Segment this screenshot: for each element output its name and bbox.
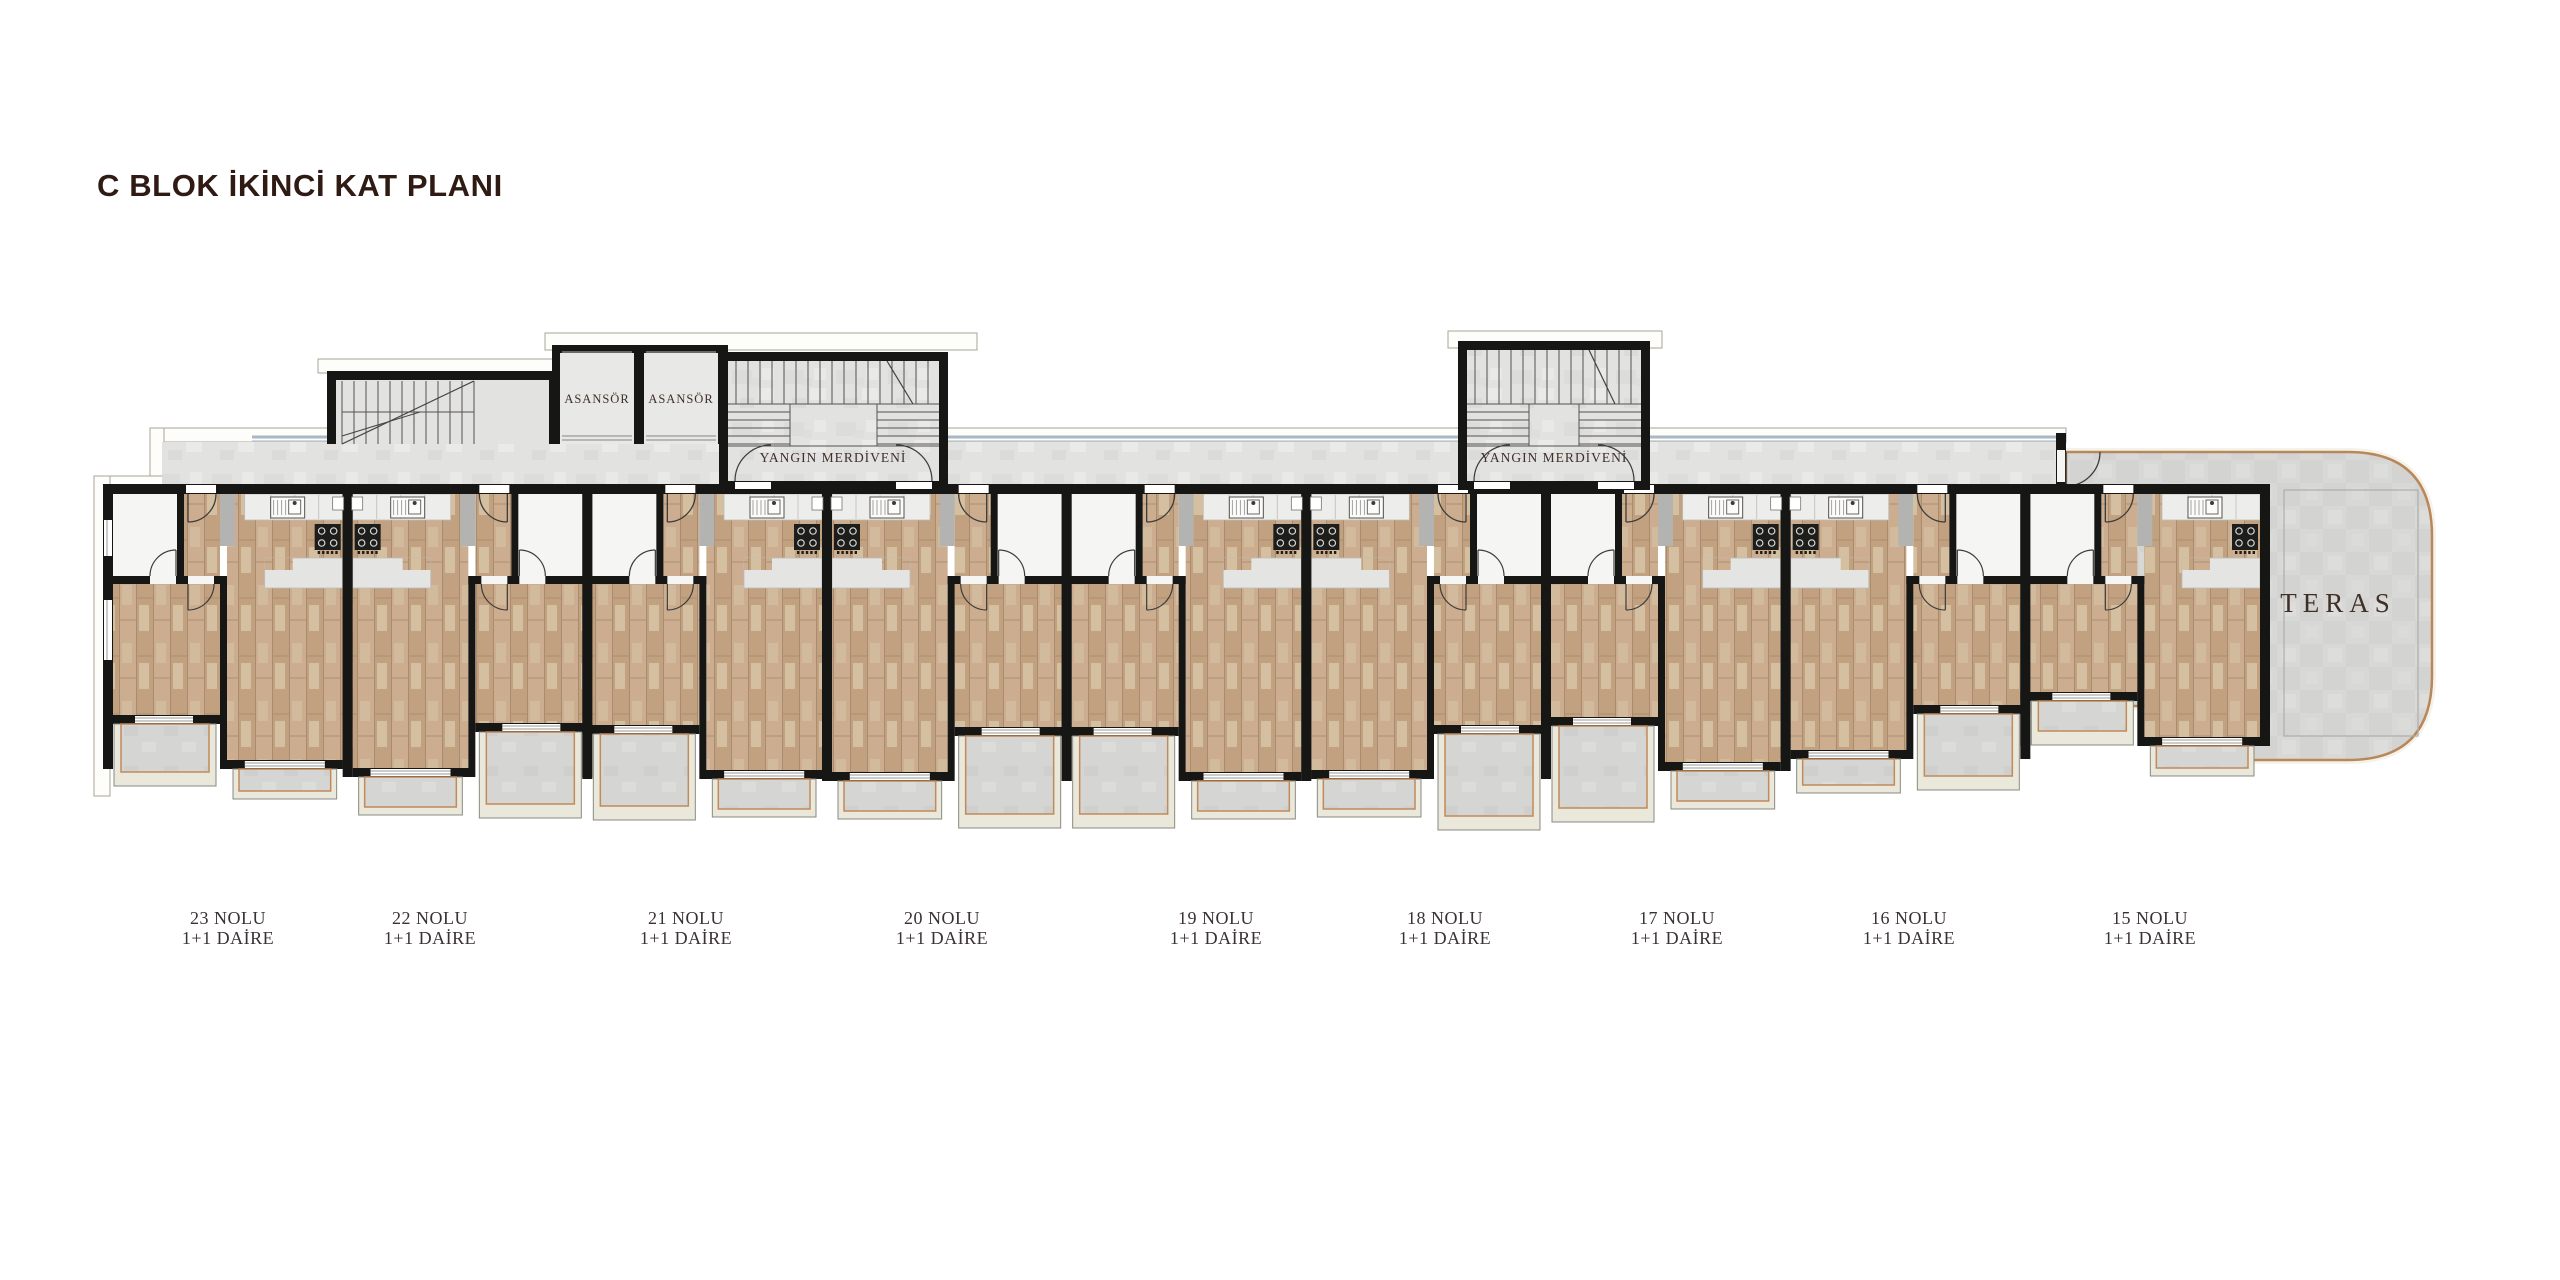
- fire-escape-1: YANGIN MERDİVENİ: [719, 352, 948, 490]
- shaft: [940, 494, 955, 546]
- living-balcony: [712, 779, 816, 817]
- fire-escape-1-label: YANGIN MERDİVENİ: [760, 450, 907, 465]
- entry-hall: [1434, 494, 1470, 576]
- svg-text:1+1 DAİRE: 1+1 DAİRE: [182, 928, 274, 948]
- shaft: [1179, 494, 1194, 546]
- bedroom-balcony: [959, 736, 1061, 828]
- svg-text:1+1 DAİRE: 1+1 DAİRE: [1863, 928, 1955, 948]
- svg-text:19 NOLU: 19 NOLU: [1178, 908, 1254, 928]
- svg-text:18 NOLU: 18 NOLU: [1407, 908, 1483, 928]
- living-balcony: [2150, 746, 2254, 776]
- stove-icon: [315, 524, 341, 554]
- apartment-19: [1062, 484, 1312, 828]
- bathroom: [518, 494, 582, 576]
- apartment-labels: 23 NOLU1+1 DAİRE22 NOLU1+1 DAİRE21 NOLU1…: [182, 908, 2196, 948]
- floor-plan-page: C BLOK İKİNCİ KAT PLANI TERASASANSÖRASAN…: [0, 0, 2560, 1280]
- bathroom: [1956, 494, 2020, 576]
- svg-text:23 NOLU: 23 NOLU: [190, 908, 266, 928]
- fire-escape-2: YANGIN MERDİVENİ: [1458, 341, 1650, 490]
- apartment-label-21: 21 NOLU1+1 DAİRE: [640, 908, 732, 948]
- sink-icon: [1229, 497, 1263, 518]
- living-balcony: [1192, 781, 1296, 819]
- elevator-block: ASANSÖRASANSÖR: [552, 345, 728, 444]
- apartment-16: [1781, 484, 2031, 793]
- svg-text:1+1 DAİRE: 1+1 DAİRE: [896, 928, 988, 948]
- bathroom: [1477, 494, 1541, 576]
- svg-text:22 NOLU: 22 NOLU: [392, 908, 468, 928]
- living-balcony: [838, 781, 942, 819]
- shaft: [1898, 494, 1913, 546]
- bedroom: [113, 584, 220, 715]
- bedroom: [955, 584, 1062, 727]
- bedroom-balcony: [2031, 701, 2133, 745]
- stove-icon: [1313, 524, 1339, 554]
- sink-icon: [1829, 497, 1863, 518]
- apartment-23: [103, 484, 353, 799]
- bedroom-balcony: [1438, 734, 1540, 830]
- apartment-20: [822, 484, 1072, 828]
- svg-text:1+1 DAİRE: 1+1 DAİRE: [384, 928, 476, 948]
- apartment-label-18: 18 NOLU1+1 DAİRE: [1399, 908, 1491, 948]
- apartment-label-16: 16 NOLU1+1 DAİRE: [1863, 908, 1955, 948]
- entry-hall: [184, 494, 220, 576]
- stove-icon: [834, 524, 860, 554]
- bedroom-balcony: [593, 734, 695, 820]
- bedroom-balcony: [114, 724, 216, 786]
- living-balcony: [359, 777, 463, 815]
- svg-text:21 NOLU: 21 NOLU: [648, 908, 724, 928]
- stove-icon: [355, 524, 381, 554]
- apartment-label-20: 20 NOLU1+1 DAİRE: [896, 908, 988, 948]
- stove-icon: [2232, 524, 2258, 554]
- bedroom-balcony: [1552, 726, 1654, 822]
- fire-escape-2-label: YANGIN MERDİVENİ: [1481, 450, 1628, 465]
- svg-text:17 NOLU: 17 NOLU: [1639, 908, 1715, 928]
- apartment-label-19: 19 NOLU1+1 DAİRE: [1170, 908, 1262, 948]
- bathroom: [1551, 494, 1615, 576]
- svg-text:1+1 DAİRE: 1+1 DAİRE: [640, 928, 732, 948]
- shaft: [1658, 494, 1673, 546]
- stove-icon: [1273, 524, 1299, 554]
- living-balcony: [1317, 779, 1421, 817]
- living-balcony: [1671, 771, 1775, 809]
- bathroom: [592, 494, 656, 576]
- shaft: [460, 494, 475, 546]
- bedroom: [1072, 584, 1179, 727]
- bathroom: [998, 494, 1062, 576]
- bathroom: [1072, 494, 1136, 576]
- stove-icon: [1793, 524, 1819, 554]
- living-balcony: [1797, 759, 1901, 793]
- elevator-label-2: ASANSÖR: [648, 392, 713, 406]
- bedroom-balcony: [479, 732, 581, 818]
- sink-icon: [870, 497, 904, 518]
- page-title: C BLOK İKİNCİ KAT PLANI: [97, 168, 503, 204]
- bedroom: [1913, 584, 2020, 705]
- apartment-label-23: 23 NOLU1+1 DAİRE: [182, 908, 274, 948]
- living-balcony: [233, 769, 337, 799]
- entry-hall: [1913, 494, 1949, 576]
- sink-icon: [2188, 497, 2222, 518]
- sink-icon: [391, 497, 425, 518]
- apartment-18: [1301, 484, 1551, 830]
- shaft: [699, 494, 714, 546]
- apartment-21: [582, 484, 832, 820]
- svg-text:16 NOLU: 16 NOLU: [1871, 908, 1947, 928]
- sink-icon: [271, 497, 305, 518]
- svg-text:1+1 DAİRE: 1+1 DAİRE: [1631, 928, 1723, 948]
- svg-text:1+1 DAİRE: 1+1 DAİRE: [1399, 928, 1491, 948]
- apartment-17: [1541, 484, 1791, 822]
- main-staircase: [327, 371, 558, 444]
- entry-hall: [1622, 494, 1658, 576]
- sink-icon: [750, 497, 784, 518]
- entry-hall: [2101, 494, 2137, 576]
- svg-text:1+1 DAİRE: 1+1 DAİRE: [2104, 928, 2196, 948]
- elevator-label-1: ASANSÖR: [564, 392, 629, 406]
- bedroom-balcony: [1073, 736, 1175, 828]
- shaft: [2137, 494, 2152, 546]
- apartment-15: [2020, 484, 2270, 776]
- terrace-label: TERAS: [2280, 588, 2396, 618]
- entry-hall: [1143, 494, 1179, 576]
- svg-text:20 NOLU: 20 NOLU: [904, 908, 980, 928]
- stove-icon: [1753, 524, 1779, 554]
- stove-icon: [794, 524, 820, 554]
- svg-text:15 NOLU: 15 NOLU: [2112, 908, 2188, 928]
- shaft: [1419, 494, 1434, 546]
- sink-icon: [1709, 497, 1743, 518]
- bedroom-balcony: [1917, 714, 2019, 790]
- bathroom: [113, 494, 177, 576]
- shaft: [220, 494, 235, 546]
- apartment-label-17: 17 NOLU1+1 DAİRE: [1631, 908, 1723, 948]
- entry-hall: [955, 494, 991, 576]
- sink-icon: [1349, 497, 1383, 518]
- svg-text:1+1 DAİRE: 1+1 DAİRE: [1170, 928, 1262, 948]
- apartment-label-22: 22 NOLU1+1 DAİRE: [384, 908, 476, 948]
- apartment-22: [343, 484, 593, 818]
- entry-hall: [475, 494, 511, 576]
- entry-hall: [663, 494, 699, 576]
- apartment-label-15: 15 NOLU1+1 DAİRE: [2104, 908, 2196, 948]
- bathroom: [2030, 494, 2094, 576]
- bedroom: [2030, 584, 2137, 692]
